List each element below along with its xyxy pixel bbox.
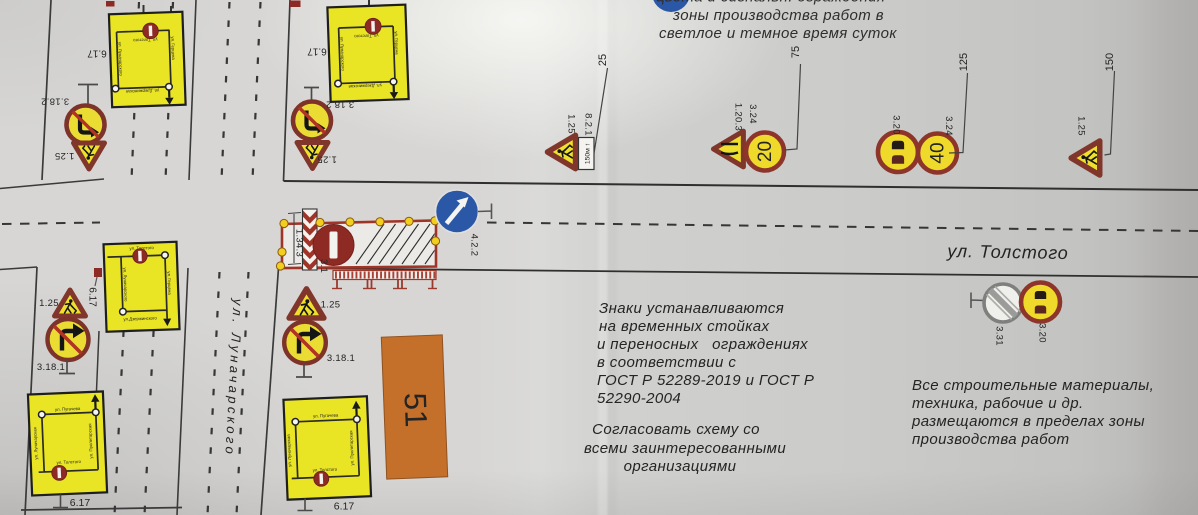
svg-text:150: 150 [1104, 53, 1116, 71]
svg-text:3.24: 3.24 [943, 116, 954, 136]
svg-text:ул. Герцена: ул. Герцена [167, 271, 173, 295]
svg-text:ул. Герцена: ул. Герцена [170, 36, 176, 60]
svg-text:ул. Герцена: ул. Герцена [394, 31, 400, 55]
svg-text:52290-2004: 52290-2004 [597, 390, 681, 407]
svg-text:и переносных ограждениях: и переносных ограждениях [597, 336, 808, 353]
svg-text:125: 125 [958, 53, 970, 71]
svg-text:на временных стойках: на временных стойках [599, 318, 769, 335]
svg-text:1.20.3: 1.20.3 [733, 103, 744, 131]
svg-text:25: 25 [597, 54, 609, 66]
svg-text:4.2.2: 4.2.2 [469, 234, 480, 257]
svg-text:1.34.3: 1.34.3 [294, 229, 305, 257]
svg-text:светлое и темное время суток: светлое и темное время суток [659, 25, 897, 42]
svg-text:8.2.1: 8.2.1 [583, 113, 594, 136]
svg-text:51: 51 [397, 392, 433, 428]
svg-text:Все строительные материалы,: Все строительные материалы, [912, 377, 1154, 394]
svg-text:ул. Толстого: ул. Толстого [313, 467, 338, 473]
svg-text:3.20: 3.20 [1037, 323, 1048, 343]
svg-text:1.25: 1.25 [1076, 116, 1087, 136]
svg-text:1.25: 1.25 [39, 298, 59, 309]
svg-text:6.17: 6.17 [87, 287, 98, 307]
svg-text:всеми заинтересованными: всеми заинтересованными [584, 440, 786, 457]
svg-text:Знаки устанавливаются: Знаки устанавливаются [599, 300, 784, 317]
svg-text:20: 20 [755, 141, 776, 162]
svg-text:6.17: 6.17 [334, 501, 355, 513]
svg-text:40: 40 [928, 142, 949, 163]
svg-text:ул. Толстого: ул. Толстого [354, 33, 379, 39]
svg-text:3.20: 3.20 [891, 115, 902, 135]
svg-text:размещаются в пределах зоны: размещаются в пределах зоны [911, 413, 1145, 430]
svg-text:6.17: 6.17 [307, 46, 327, 57]
svg-text:1.25: 1.25 [55, 150, 75, 161]
svg-text:3.24: 3.24 [747, 104, 758, 124]
svg-text:1.25: 1.25 [566, 114, 577, 134]
svg-text:ул. Толстого: ул. Толстого [57, 459, 82, 465]
svg-text:техника, рабочие и др.: техника, рабочие и др. [912, 395, 1084, 412]
svg-text:ул. Луначарского: ул. Луначарского [222, 297, 245, 457]
svg-text:Согласовать схему со: Согласовать схему со [592, 421, 760, 438]
svg-text:3.31: 3.31 [994, 326, 1005, 346]
svg-text:1.25: 1.25 [317, 154, 337, 165]
svg-text:3.18.1: 3.18.1 [327, 353, 355, 364]
svg-text:6.17: 6.17 [70, 497, 91, 509]
svg-text:6.17: 6.17 [87, 48, 107, 59]
svg-text:ГОСТ Р 52289-2019 и ГОСТ Р: ГОСТ Р 52289-2019 и ГОСТ Р [597, 372, 814, 389]
svg-text:3.1: 3.1 [318, 259, 329, 273]
svg-text:в соответствии с: в соответствии с [597, 354, 736, 371]
svg-text:ул. Толстого: ул. Толстого [132, 37, 157, 43]
svg-text:3.18.1: 3.18.1 [37, 362, 65, 373]
svg-text:3.18.2: 3.18.2 [41, 96, 69, 107]
svg-text:зоны производства работ в: зоны производства работ в [672, 7, 884, 24]
svg-text:150м ↑: 150м ↑ [585, 143, 592, 164]
svg-text:75: 75 [790, 46, 802, 58]
svg-text:1.25: 1.25 [321, 300, 341, 311]
svg-text:ул. Толстого: ул. Толстого [945, 241, 1069, 263]
svg-text:цвета и сигнальн. ограждения: цвета и сигнальн. ограждения [656, 0, 885, 6]
svg-text:организациями: организациями [624, 458, 737, 475]
svg-text:производства работ: производства работ [912, 431, 1070, 448]
